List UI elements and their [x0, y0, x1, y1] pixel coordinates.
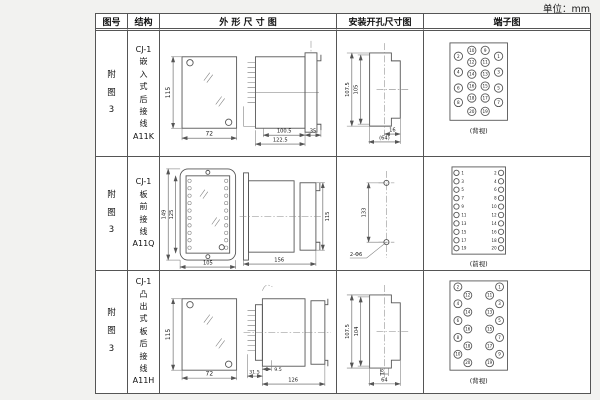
- figno-cell-row3: 附 图 3: [96, 271, 128, 393]
- dim-inner-height: 104: [354, 327, 360, 337]
- view-label: (前视): [470, 259, 488, 268]
- dim-front-width: 72: [206, 371, 214, 378]
- svg-text:8: 8: [457, 335, 460, 340]
- svg-text:7: 7: [498, 335, 501, 340]
- col-header-outline: 外 形 尺 寸 图: [160, 14, 337, 31]
- svg-text:5: 5: [498, 318, 501, 323]
- dim-inner-height: 105: [354, 85, 360, 95]
- svg-text:7: 7: [497, 100, 500, 105]
- svg-text:15: 15: [461, 229, 467, 234]
- dim-front-outer-height: 149: [161, 210, 167, 220]
- svg-text:9: 9: [498, 352, 501, 357]
- dim-rear-height: 115: [325, 212, 331, 222]
- terminal-numbers: 2468 101214161820 91113151719 1357: [457, 48, 500, 114]
- outline-drawing-a11q: 149 125 105 156: [160, 157, 336, 270]
- dim-opening-width: 64: [381, 377, 388, 383]
- front-view: 115 72: [165, 299, 236, 380]
- view-label: (背视): [470, 376, 488, 385]
- figno-cell-row1: 附 图 3: [96, 31, 128, 157]
- svg-text:19: 19: [483, 109, 489, 114]
- svg-text:18: 18: [465, 343, 471, 348]
- side-view: 31.5 9.5 126: [244, 285, 331, 386]
- spec-table: 图号 结构 外 形 尺 寸 图 安装开孔尺寸图 端子图 附 图 3 CJ-1 嵌…: [95, 13, 591, 394]
- dim-front-inner-height: 125: [169, 210, 175, 220]
- dim-slot-width: 16: [379, 369, 385, 375]
- svg-text:5: 5: [461, 187, 464, 192]
- svg-text:9: 9: [461, 204, 464, 209]
- svg-text:14: 14: [465, 310, 471, 315]
- dim-front-width: 105: [203, 261, 213, 267]
- svg-text:2: 2: [457, 54, 460, 59]
- dim-outer-height: 107.5: [345, 82, 351, 97]
- svg-text:18: 18: [469, 95, 475, 100]
- outline-drawing-a11k: 115 72 100.5 35: [160, 31, 336, 156]
- dim-slot-width: 16: [389, 128, 396, 134]
- front-view: 115 72: [165, 57, 236, 140]
- dim-depth: 126: [288, 378, 298, 384]
- terminal-numbers: 246810 1214161820 1113151719 13579: [455, 284, 501, 365]
- terminal-circles: [454, 283, 504, 367]
- svg-text:2: 2: [457, 284, 460, 289]
- svg-text:5: 5: [497, 86, 500, 91]
- svg-text:6: 6: [457, 86, 460, 91]
- svg-text:20: 20: [492, 246, 498, 251]
- svg-text:20: 20: [469, 109, 475, 114]
- svg-text:4: 4: [494, 179, 497, 184]
- view-label: (背视): [470, 126, 488, 135]
- terminal-cell-row1: 2468 101214161820 91113151719 1357 (背视): [424, 31, 590, 157]
- dim-base-depth: 31.5: [249, 370, 260, 376]
- svg-text:15: 15: [483, 84, 489, 89]
- svg-text:16: 16: [469, 84, 475, 89]
- install-cell-row3: 107.5 104 16 64: [337, 271, 424, 393]
- dim-front-width: 72: [206, 131, 214, 138]
- terminal-numbers: 135791113151719 2468101214161820: [461, 170, 497, 250]
- figno-cell-row2: 附 图 3: [96, 157, 128, 271]
- svg-text:8: 8: [494, 196, 497, 201]
- svg-text:15: 15: [487, 326, 493, 331]
- install-drawing-a11k: 107.5 105 16 (64): [337, 31, 423, 156]
- terminal-circles: [454, 46, 503, 115]
- svg-text:16: 16: [465, 326, 471, 331]
- outline-cell-row1: 115 72 100.5 35: [160, 31, 337, 157]
- svg-text:14: 14: [469, 72, 475, 77]
- svg-text:12: 12: [469, 60, 475, 65]
- svg-text:10: 10: [492, 204, 498, 209]
- terminal-cell-row3: 246810 1214161820 1113151719 13579 (背视): [424, 271, 590, 393]
- svg-text:1: 1: [461, 170, 464, 175]
- svg-text:12: 12: [465, 293, 471, 298]
- dim-hole-spacing: 133: [362, 208, 368, 218]
- svg-text:1: 1: [497, 54, 500, 59]
- terminal-strip-dots: [188, 179, 228, 249]
- dim-depth: 100.5: [277, 129, 292, 135]
- dim-opening-width: (64): [379, 135, 390, 141]
- svg-text:6: 6: [457, 318, 460, 323]
- svg-text:4: 4: [457, 301, 460, 306]
- svg-text:10: 10: [455, 352, 461, 357]
- col-header-install: 安装开孔尺寸图: [337, 14, 424, 31]
- svg-text:6: 6: [494, 187, 497, 192]
- svg-text:20: 20: [465, 360, 471, 365]
- svg-text:11: 11: [461, 212, 467, 217]
- dim-flange-depth: 35: [310, 129, 317, 135]
- dim-front-height: 115: [165, 329, 172, 341]
- svg-text:13: 13: [487, 310, 493, 315]
- svg-text:16: 16: [492, 229, 498, 234]
- outline-drawing-a11h: 115 72 31.5 9.5: [160, 271, 336, 392]
- col-header-structure: 结构: [128, 14, 160, 31]
- document-page: 单位：mm 图号 结构 外 形 尺 寸 图 安装开孔尺寸图 端子图 附 图 3 …: [0, 0, 600, 400]
- svg-text:7: 7: [461, 196, 464, 201]
- svg-text:3: 3: [461, 179, 464, 184]
- svg-text:18: 18: [492, 238, 498, 243]
- dim-plate-depth: 9.5: [274, 367, 282, 373]
- svg-text:10: 10: [469, 48, 475, 53]
- front-view: 149 125 105: [161, 169, 235, 269]
- terminal-cell-row2: 135791113151719 2468101214161820 (前视): [424, 157, 590, 271]
- dim-depth: 156: [274, 258, 284, 264]
- svg-text:4: 4: [457, 70, 460, 75]
- outline-cell-row2: 149 125 105 156: [160, 157, 337, 271]
- install-drawing-a11h: 107.5 104 16 64: [337, 271, 423, 392]
- svg-text:19: 19: [461, 246, 467, 251]
- svg-text:17: 17: [487, 343, 493, 348]
- dim-front-height: 115: [165, 87, 172, 99]
- svg-text:1: 1: [498, 284, 501, 289]
- svg-text:2: 2: [494, 170, 497, 175]
- install-cell-row1: 107.5 105 16 (64): [337, 31, 424, 157]
- svg-text:3: 3: [498, 301, 501, 306]
- terminal-diagram-a11k: 2468 101214161820 91113151719 1357 (背视): [424, 31, 589, 156]
- structure-cell-row3: CJ-1 凸 出 式 板 后 接 线 A11H: [128, 271, 160, 393]
- col-header-terminal: 端子图: [424, 14, 590, 31]
- svg-text:19: 19: [487, 360, 493, 365]
- svg-text:9: 9: [484, 48, 487, 53]
- svg-text:17: 17: [461, 238, 467, 243]
- dim-total-depth: 122.5: [273, 138, 288, 144]
- col-header-figno: 图号: [96, 14, 128, 31]
- svg-text:17: 17: [483, 95, 489, 100]
- hole-size-label: 2-Φ6: [350, 252, 362, 258]
- svg-text:13: 13: [461, 221, 467, 226]
- svg-text:13: 13: [483, 72, 489, 77]
- side-view: 156 115: [240, 173, 331, 266]
- svg-text:12: 12: [492, 212, 498, 217]
- install-drawing-a11q: 133 2-Φ6: [337, 157, 423, 270]
- svg-text:11: 11: [483, 60, 489, 65]
- dim-outer-height: 107.5: [345, 324, 351, 339]
- structure-cell-row2: CJ-1 板 前 接 线 A11Q: [128, 157, 160, 271]
- svg-text:11: 11: [487, 293, 493, 298]
- outline-cell-row3: 115 72 31.5 9.5: [160, 271, 337, 393]
- install-cell-row2: 133 2-Φ6: [337, 157, 424, 271]
- structure-cell-row1: CJ-1 嵌 入 式 后 接 线 A11K: [128, 31, 160, 157]
- svg-text:14: 14: [492, 221, 498, 226]
- svg-text:8: 8: [457, 100, 460, 105]
- terminal-diagram-a11h: 246810 1214161820 1113151719 13579 (背视): [424, 271, 589, 392]
- side-view: 100.5 35 122.5: [244, 41, 321, 146]
- svg-text:3: 3: [497, 70, 500, 75]
- terminal-diagram-a11q: 135791113151719 2468101214161820 (前视): [424, 157, 589, 270]
